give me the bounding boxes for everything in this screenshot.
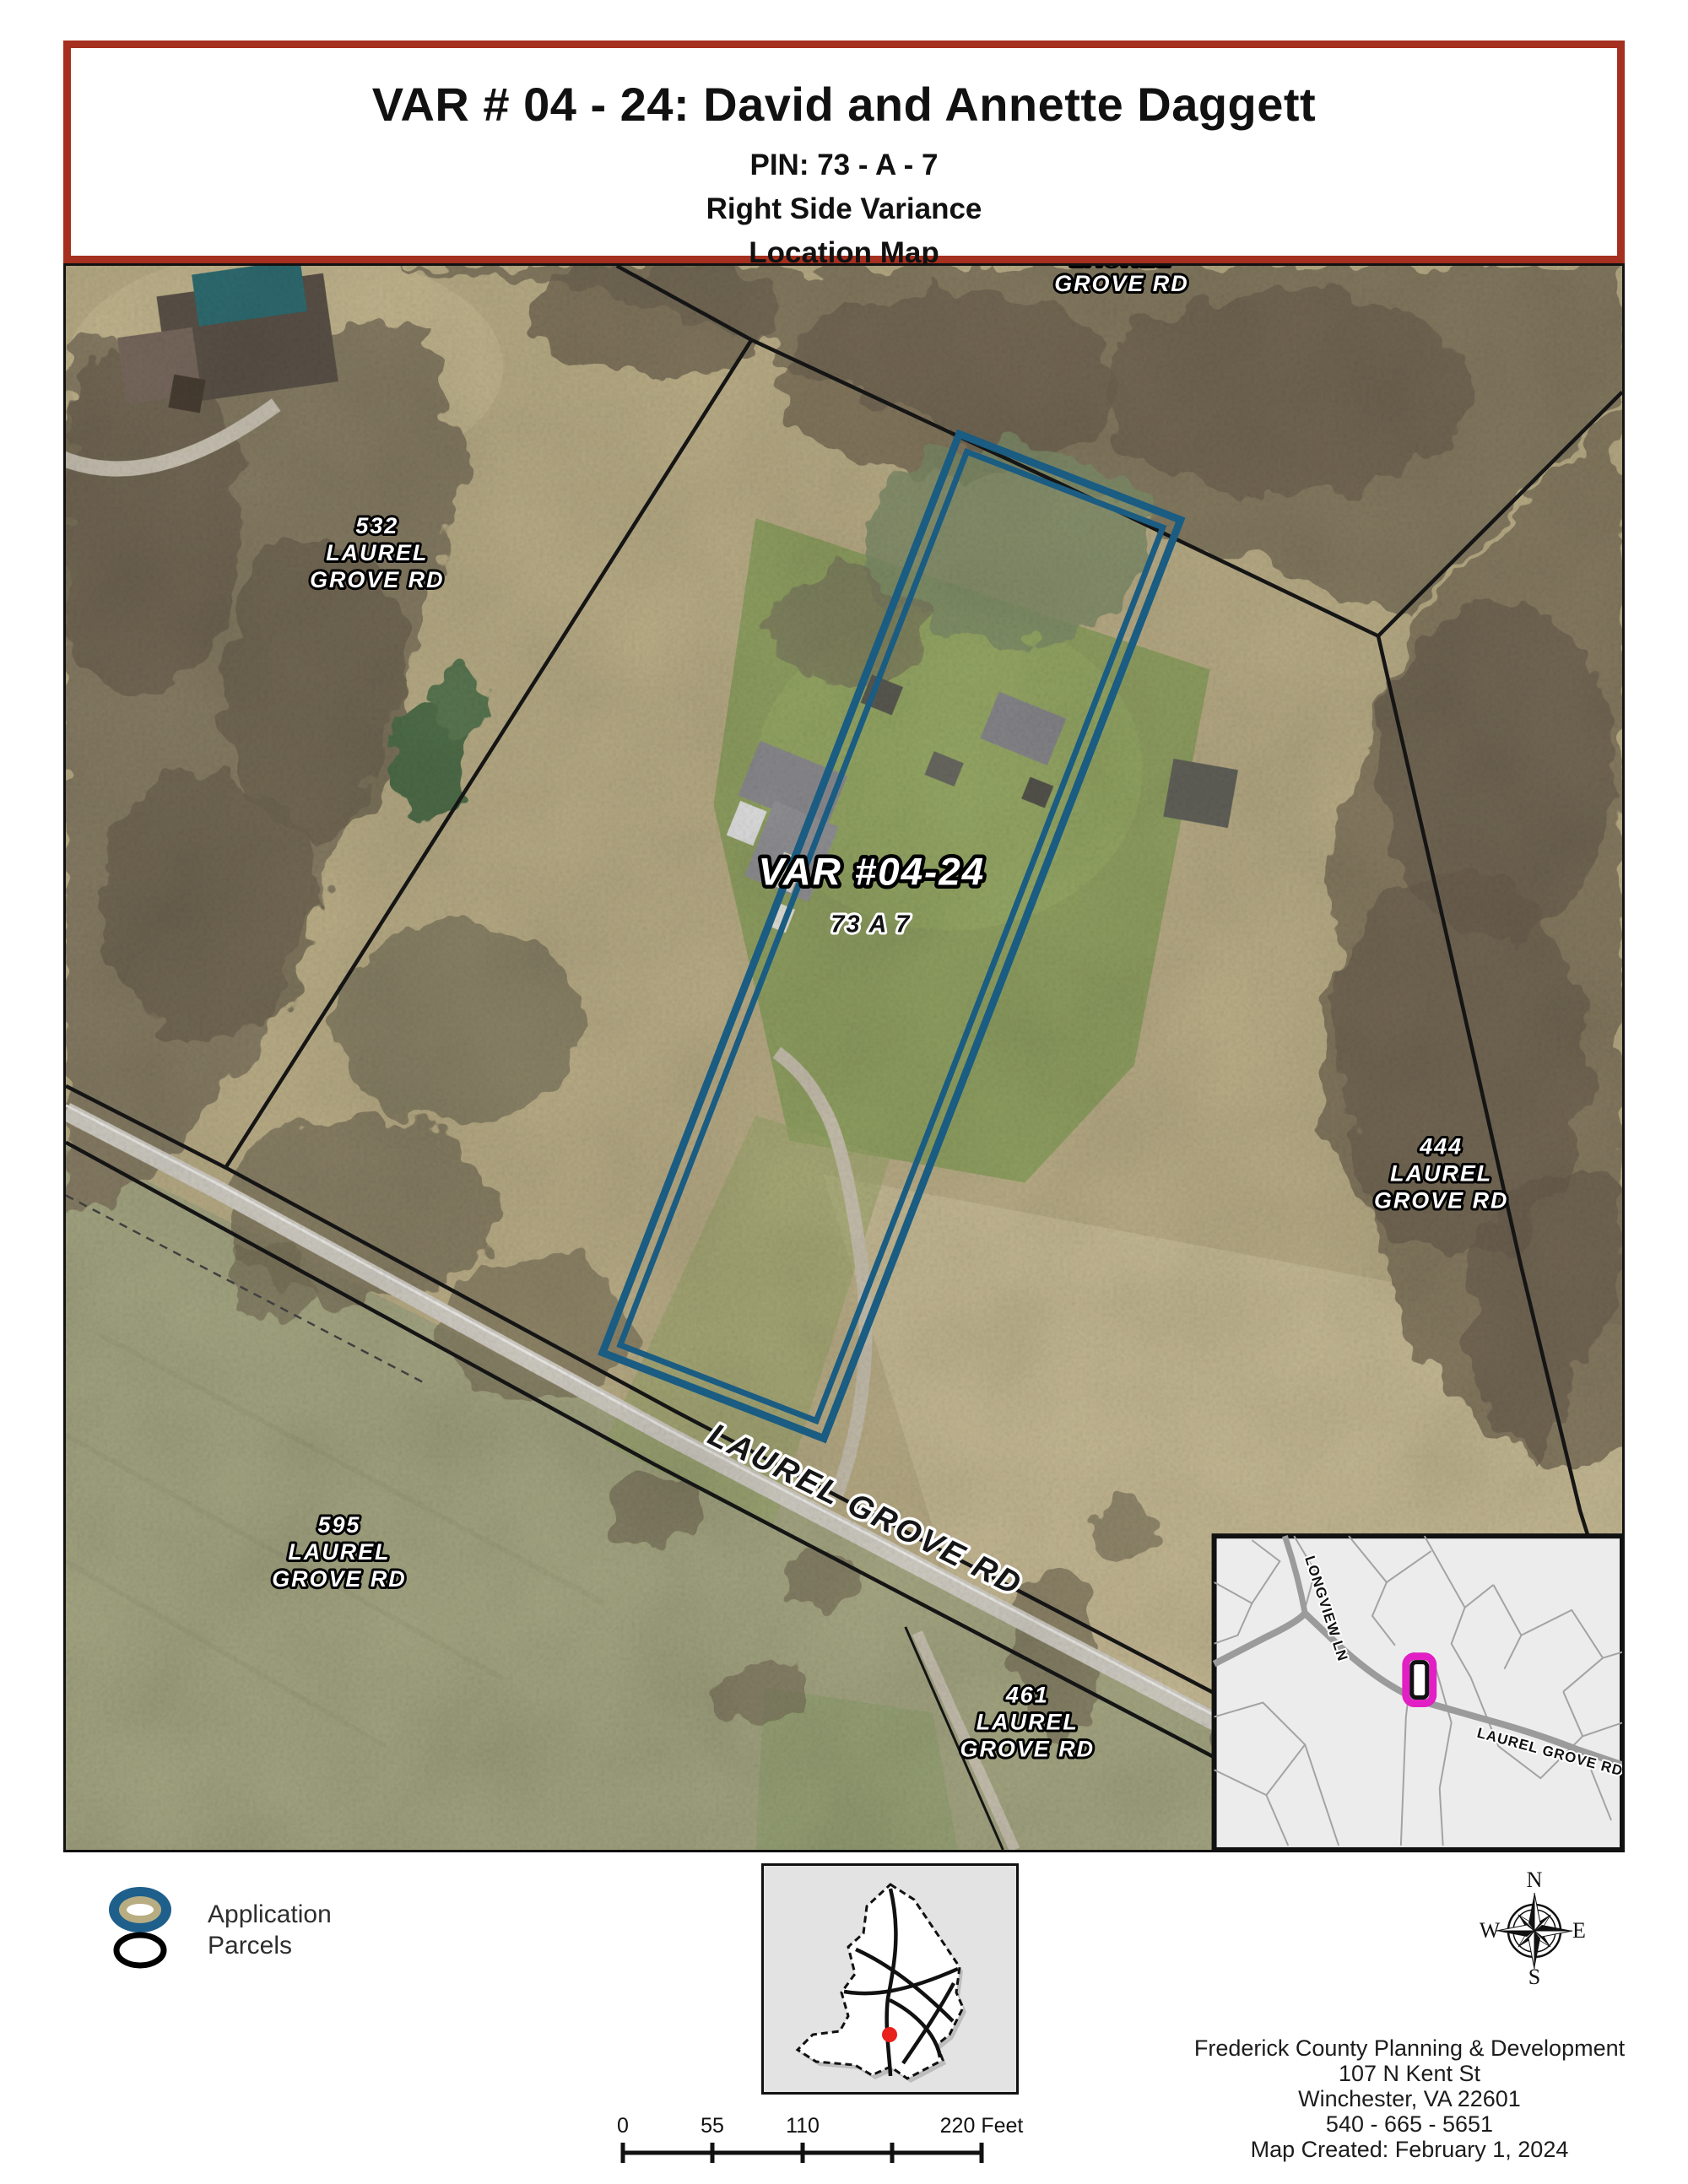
scale-tick-55: 55 <box>701 2114 724 2138</box>
application-symbol-icon <box>109 1887 171 1933</box>
agency-address-block: Frederick County Planning & Development … <box>1148 2035 1671 2162</box>
label-532-groverd: GROVE RD <box>310 567 444 592</box>
vicinity-highlight-inner <box>1412 1662 1427 1698</box>
legend-icons <box>100 1880 180 1981</box>
compass-star <box>1496 1893 1572 1969</box>
scale-tick-0: 0 <box>617 2114 629 2138</box>
label-532-number: 532 <box>355 513 398 538</box>
parcels-symbol-icon <box>116 1935 164 1965</box>
legend: Application Parcels <box>100 1880 454 1990</box>
map-created-date: Map Created: February 1, 2024 <box>1148 2137 1671 2162</box>
label-444-laurel: LAUREL <box>1390 1161 1492 1187</box>
page-title: VAR # 04 - 24: David and Annette Daggett <box>71 77 1617 132</box>
scale-bar: 0 55 110 220 Feet <box>603 2114 1025 2173</box>
label-461-number: 461 <box>1005 1683 1049 1708</box>
title-box: VAR # 04 - 24: David and Annette Daggett… <box>63 41 1625 263</box>
compass-west-label: W <box>1480 1918 1501 1943</box>
compass-rose: N S W E <box>1480 1872 1589 1990</box>
label-444-number: 444 <box>1419 1134 1463 1160</box>
agency-city: Winchester, VA 22601 <box>1148 2086 1671 2111</box>
title-subline-variance: Right Side Variance <box>71 187 1617 231</box>
label-595-laurel: LAUREL <box>288 1539 390 1565</box>
compass-south-label: S <box>1528 1965 1540 1989</box>
title-subline-pin: PIN: 73 - A - 7 <box>71 143 1617 187</box>
legend-item-application: Application <box>208 1899 332 1930</box>
label-595-groverd: GROVE RD <box>272 1566 406 1592</box>
label-subject-pin: 73 A 7 <box>830 911 911 938</box>
agency-name: Frederick County Planning & Development <box>1148 2035 1671 2061</box>
legend-labels: Application Parcels <box>208 1899 332 1961</box>
label-532-laurel: LAUREL <box>326 540 428 565</box>
label-444-groverd: GROVE RD <box>1374 1187 1508 1213</box>
aerial-location-map: LAUREL GROVE RD 532 LAUREL GROVE RD VAR … <box>63 263 1625 1852</box>
county-location-dot <box>882 2027 897 2042</box>
compass-north-label: N <box>1527 1872 1543 1892</box>
scale-tick-110: 110 <box>786 2114 820 2138</box>
legend-item-parcels: Parcels <box>208 1930 332 1961</box>
compass-east-label: E <box>1572 1918 1586 1943</box>
label-subject-var: VAR #04-24 <box>758 850 985 894</box>
label-595-number: 595 <box>318 1512 361 1538</box>
aerial-map-svg: LAUREL GROVE RD 532 LAUREL GROVE RD VAR … <box>66 266 1622 1850</box>
scale-tick-220: 220 Feet <box>940 2114 1024 2138</box>
agency-phone: 540 - 665 - 5651 <box>1148 2111 1671 2137</box>
label-461-groverd: GROVE RD <box>960 1736 1095 1761</box>
label-461-laurel: LAUREL <box>977 1709 1079 1734</box>
label-top-groverd: GROVE RD <box>1054 271 1188 296</box>
variance-location-map-page: VAR # 04 - 24: David and Annette Daggett… <box>0 0 1688 2184</box>
agency-street: 107 N Kent St <box>1148 2061 1671 2086</box>
county-locator-map <box>761 1863 1019 2095</box>
vicinity-inset-map: LONGVIEW LN LAUREL GROVE RD <box>1215 1536 1622 1850</box>
